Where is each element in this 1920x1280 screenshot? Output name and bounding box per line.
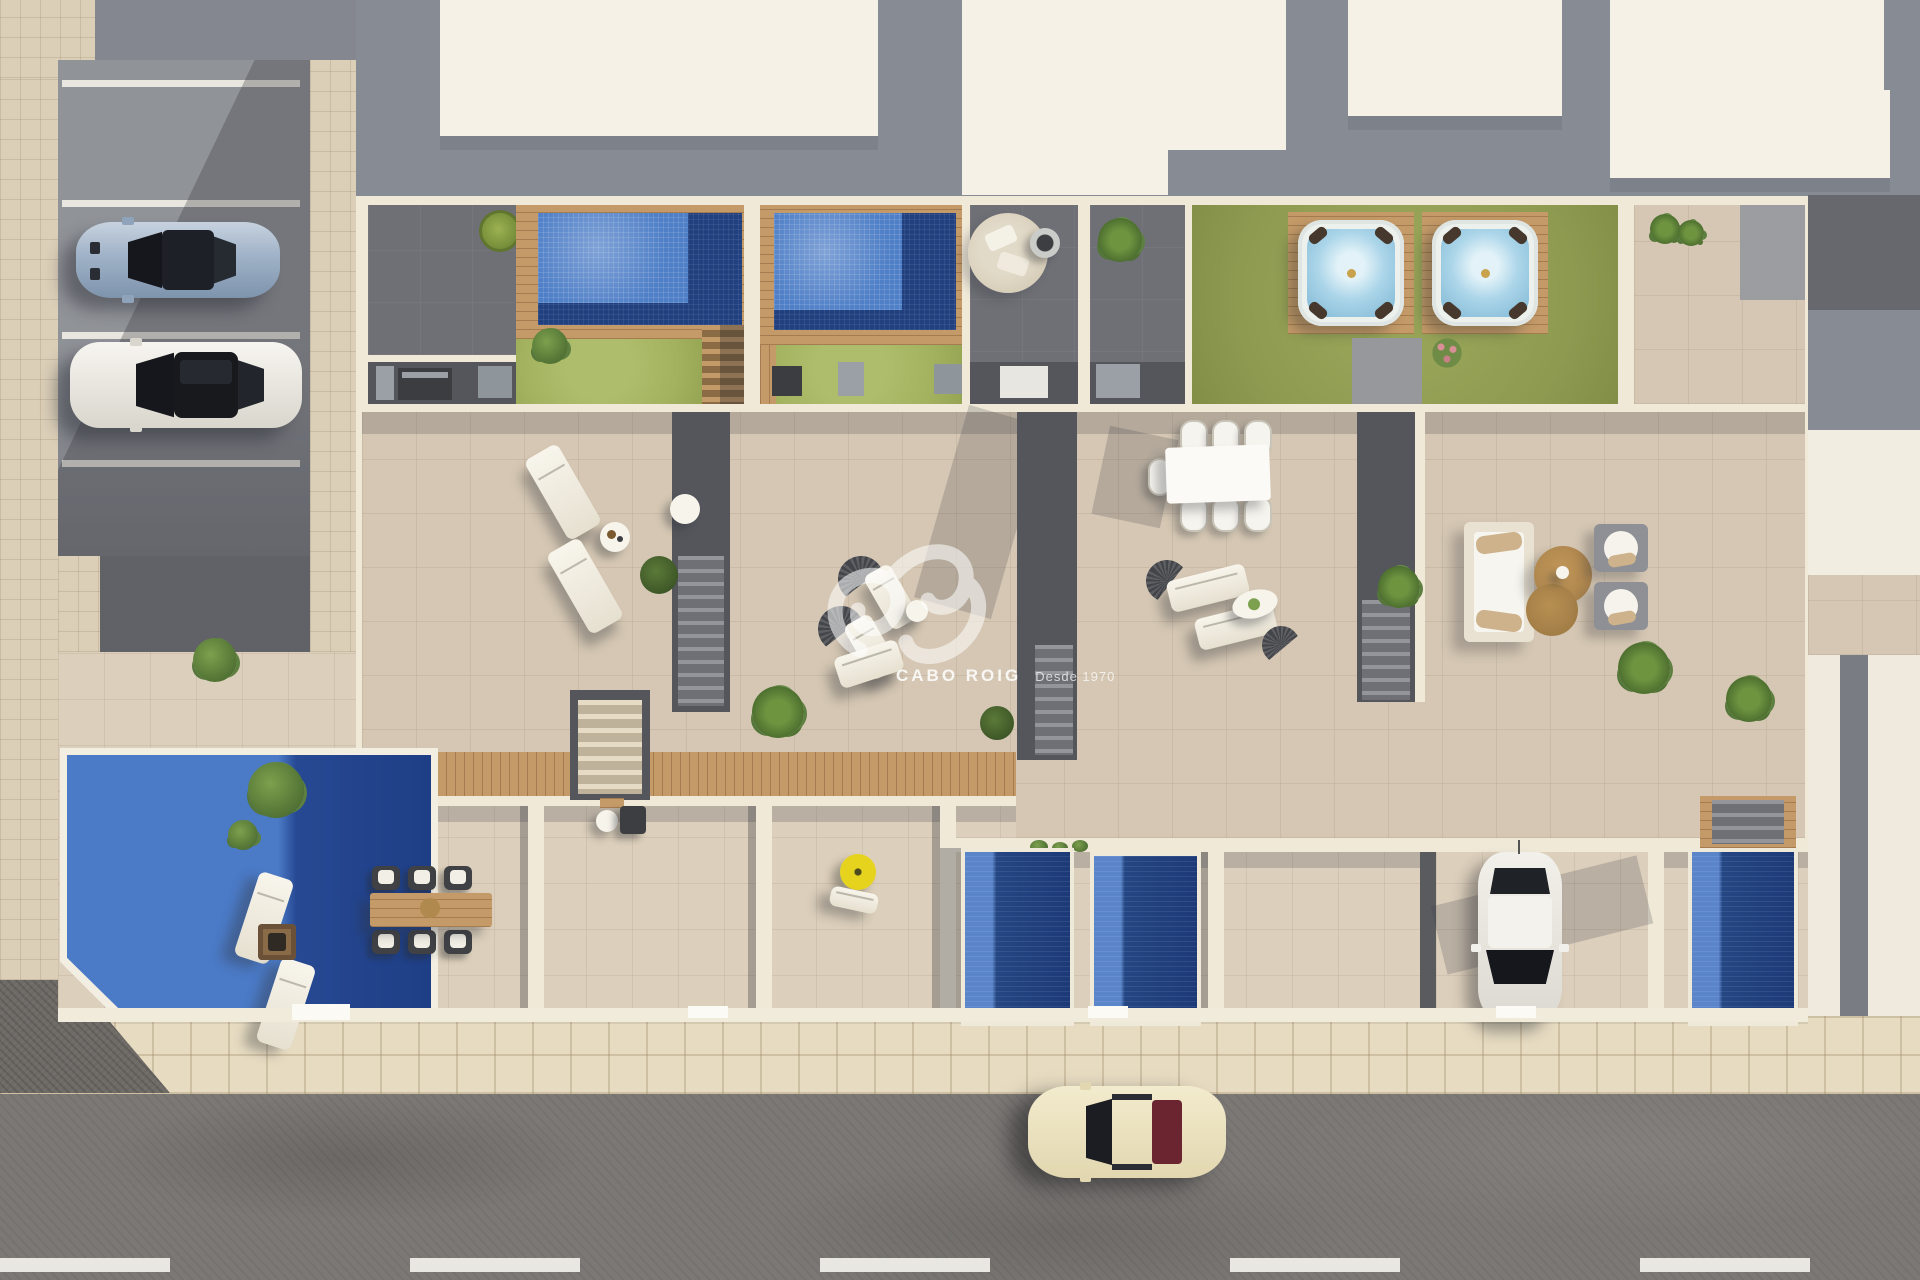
lounge-cushion (996, 251, 1030, 277)
chair-cushion (378, 934, 394, 948)
ground-pool-2 (1090, 852, 1201, 1026)
palm-plant (1098, 218, 1142, 262)
roof-gray-notch (1884, 0, 1920, 90)
side-mirror (122, 295, 134, 303)
table-tray (420, 898, 440, 918)
garden-armchair (1594, 524, 1648, 572)
palm-plant (1650, 214, 1680, 244)
watermark: CABO ROIG Desde 1970 (808, 538, 1148, 708)
round-table (670, 494, 700, 524)
wicker-chair (408, 866, 436, 890)
bbq-steel-top (402, 372, 448, 378)
fire-pit-table (258, 924, 296, 960)
road-dashed-center-line (0, 1258, 1920, 1272)
white-rooftop (440, 0, 878, 150)
fire-bowl (1030, 228, 1060, 258)
entry-steps (578, 700, 642, 794)
silver-sports-car (76, 222, 280, 298)
round-side-table (600, 522, 630, 552)
white-rooftop (1610, 0, 1890, 192)
side-mirror (1080, 1082, 1091, 1090)
rooftop-pool-1-sunlit-water (538, 213, 688, 303)
wall-shadow (932, 806, 940, 1022)
roof-slab-shadow (440, 136, 878, 150)
sink-unit (838, 362, 864, 396)
side-mirror (130, 424, 142, 432)
chair-cushion (378, 870, 394, 884)
gate (688, 1006, 728, 1018)
sink-unit (772, 366, 802, 396)
tray-item (617, 536, 623, 542)
garden-tree (248, 762, 304, 818)
white-sedan (70, 342, 302, 428)
watermark-tagline: Desde 1970 (1035, 669, 1115, 684)
lounge-cushion (984, 224, 1019, 253)
neighbor-terrace-beige (1808, 575, 1920, 655)
windshield (136, 350, 174, 420)
hot-tub-1 (1298, 220, 1404, 326)
tub-center-jet (1347, 269, 1356, 278)
kitchen-unit (1000, 366, 1048, 398)
gray-paver-path (1352, 338, 1422, 404)
white-rooftop (1348, 0, 1562, 130)
neighbor-roof-gray-strip (1840, 655, 1868, 1016)
wall-shadow (520, 806, 528, 1022)
watermark-logo-icon (808, 538, 1018, 668)
palm-plant (752, 686, 804, 738)
patio-wall (1208, 852, 1224, 1022)
tan-coffee-table (1526, 584, 1578, 636)
patio-wall (756, 806, 772, 1022)
wicker-chair (444, 866, 472, 890)
chair-cushion (414, 934, 430, 948)
side-mirror (122, 217, 134, 225)
left-paver-walkway (0, 60, 58, 980)
tub-center-jet (1481, 269, 1490, 278)
white-compact-car (1478, 852, 1562, 1022)
rear-window-maroon (1152, 1100, 1182, 1164)
ground-pool-3 (1688, 848, 1798, 1026)
watermark-text-row: CABO ROIG Desde 1970 (896, 666, 1115, 686)
pergola-parapet (356, 796, 1016, 806)
side-window (1112, 1094, 1152, 1100)
hood-vent (90, 268, 100, 280)
bistro-table (596, 810, 618, 832)
yellow-parasol (840, 854, 876, 890)
round-planter (479, 210, 521, 252)
rear-window (214, 232, 236, 288)
garden-bush (640, 556, 678, 594)
fire-pit-center (268, 933, 286, 951)
palm-plant (1678, 220, 1704, 246)
staircase (678, 556, 724, 706)
dining-chair (1244, 496, 1272, 532)
rear-window (238, 354, 264, 416)
paver-strip-beside-parking (310, 60, 356, 652)
windshield (1086, 1096, 1112, 1168)
wicker-chair (372, 866, 400, 890)
white-rooftop (1168, 0, 1286, 150)
leafy-plant (228, 820, 258, 850)
chair-cushion (450, 934, 466, 948)
flowering-plant (1432, 338, 1462, 368)
hot-tub-2 (1432, 220, 1538, 326)
side-mirror (130, 338, 142, 346)
side-mirror (1471, 944, 1481, 952)
side-mirror (1080, 1174, 1091, 1182)
neighbor-roof-white (1808, 430, 1920, 575)
side-mirror (1559, 944, 1569, 952)
kitchen-unit (1096, 364, 1140, 398)
car-roof (1488, 896, 1552, 948)
gray-terrace-piece (1740, 205, 1805, 300)
kitchen-door (376, 366, 394, 400)
garden-bush (532, 328, 568, 364)
chair-cushion (414, 870, 430, 884)
garden-bush (980, 706, 1014, 740)
gate (1496, 1006, 1536, 1018)
paver-patch (58, 556, 100, 652)
aerial-render-scene: CABO ROIG Desde 1970 (0, 0, 1920, 1280)
white-rooftop (962, 0, 1168, 195)
roof-slab-shadow (1610, 178, 1890, 192)
sink-unit (478, 366, 512, 398)
ground-pool-1 (961, 848, 1074, 1026)
terrace-divider-wall (1078, 205, 1090, 404)
palm-plant (1378, 566, 1420, 608)
wall-shadow (748, 806, 756, 1022)
deck-steps-shadow (720, 325, 744, 404)
tray-item (607, 530, 616, 539)
windshield (128, 228, 162, 292)
roof-slab-shadow (1348, 116, 1562, 130)
street-asphalt (0, 1093, 1920, 1280)
pergola-band (356, 752, 1016, 798)
cream-classic-car (1028, 1086, 1226, 1178)
divider-parapet-edge (1415, 412, 1425, 702)
windshield (1486, 950, 1554, 984)
deck-steps (1712, 800, 1784, 844)
wicker-chair (444, 930, 472, 954)
wall-shadow (1200, 852, 1208, 1022)
staircase (1362, 600, 1410, 700)
side-window (1112, 1164, 1152, 1170)
pool-wall-shadow (940, 848, 961, 1018)
garage-wall-strip (1420, 852, 1436, 1022)
garden-armchair (1594, 582, 1648, 630)
vine-plant (1072, 840, 1088, 852)
potted-plant (1247, 597, 1262, 612)
wicker-chair (408, 930, 436, 954)
rear-window (1490, 868, 1550, 894)
chair-cushion (450, 870, 466, 884)
car-roof (162, 230, 214, 290)
patio-wall (528, 806, 544, 1022)
parapet-shadow (362, 412, 1805, 434)
neighbor-terrace-dark (1808, 195, 1920, 310)
fire-cube (620, 806, 646, 834)
watermark-brand: CABO ROIG (896, 666, 1021, 686)
garden-bush (193, 638, 237, 682)
patio-wall (1648, 852, 1664, 1022)
antenna (1518, 840, 1520, 854)
palm-plant (1618, 642, 1670, 694)
rooftop-pool-2-sunlit-water (774, 213, 902, 310)
palm-plant (1726, 676, 1772, 722)
kettle (1556, 566, 1569, 579)
neighbor-roof-gray (1808, 310, 1920, 430)
sink-unit (934, 364, 962, 394)
ground-shadow (356, 806, 1016, 822)
sunroof (180, 360, 232, 384)
white-dining-table (1165, 444, 1271, 504)
gate (292, 1004, 350, 1020)
hedge-dark-strip (100, 556, 310, 652)
gate (1088, 1006, 1128, 1018)
wicker-chair (372, 930, 400, 954)
garden-sofa (1464, 522, 1534, 642)
hood-vent (90, 242, 100, 254)
